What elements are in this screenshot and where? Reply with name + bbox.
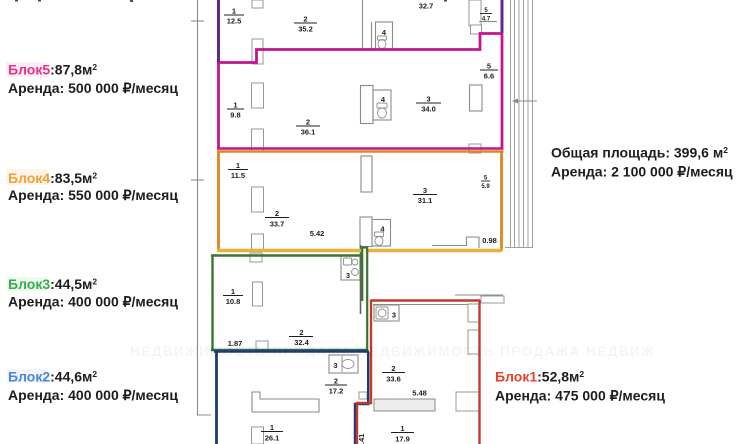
svg-text:36.1: 36.1 bbox=[301, 128, 316, 137]
svg-text:1: 1 bbox=[270, 423, 274, 432]
svg-text:34.0: 34.0 bbox=[421, 105, 436, 114]
svg-text:10.8: 10.8 bbox=[226, 297, 241, 306]
svg-text:1: 1 bbox=[400, 424, 404, 433]
svg-text:33.6: 33.6 bbox=[386, 375, 401, 384]
svg-text:5: 5 bbox=[487, 62, 491, 71]
svg-text:1: 1 bbox=[236, 161, 240, 170]
svg-text:Блок2:44,6м2: Блок2:44,6м2 bbox=[8, 369, 97, 385]
svg-text:2.41: 2.41 bbox=[357, 434, 366, 444]
svg-text:2: 2 bbox=[391, 364, 395, 373]
svg-text:3: 3 bbox=[426, 95, 430, 104]
svg-text:1: 1 bbox=[231, 287, 235, 296]
svg-text:2: 2 bbox=[334, 377, 338, 386]
svg-text:17.2: 17.2 bbox=[329, 387, 344, 396]
svg-text:Блок1:52,8м2: Блок1:52,8м2 bbox=[495, 369, 584, 385]
svg-text:6.6: 6.6 bbox=[484, 72, 494, 81]
svg-text:Аренда: 400 000 ₽/месяц: Аренда: 400 000 ₽/месяц bbox=[8, 294, 178, 310]
svg-text:11.5: 11.5 bbox=[231, 171, 245, 180]
svg-text:2: 2 bbox=[299, 328, 303, 337]
svg-text:Аренда: 550 000 ₽/месяц: Аренда: 550 000 ₽/месяц bbox=[8, 187, 178, 203]
svg-text:2: 2 bbox=[303, 15, 307, 24]
svg-text:33.7: 33.7 bbox=[270, 220, 285, 229]
svg-text:Аренда: 475 000 ₽/месяц: Аренда: 475 000 ₽/месяц bbox=[495, 388, 665, 404]
svg-text:3: 3 bbox=[423, 186, 427, 195]
svg-text:26.1: 26.1 bbox=[265, 434, 280, 443]
svg-text:0.98: 0.98 bbox=[482, 236, 497, 245]
svg-text:31.1: 31.1 bbox=[418, 196, 433, 205]
svg-text:НЕДВИЖИМОСТЬ ПРОДАЖА НЕДВИЖИМО: НЕДВИЖИМОСТЬ ПРОДАЖА НЕДВИЖИМОСТЬ ПРОДАЖ… bbox=[130, 344, 655, 359]
svg-text:Блок3:44,5м2: Блок3:44,5м2 bbox=[8, 276, 97, 292]
svg-text:3: 3 bbox=[392, 311, 396, 320]
svg-text:Аренда: 2 100 000 ₽/месяц: Аренда: 2 100 000 ₽/месяц bbox=[551, 164, 733, 180]
svg-text:Блок5:87,8м2: Блок5:87,8м2 bbox=[8, 62, 97, 78]
svg-text:17.9: 17.9 bbox=[395, 435, 410, 444]
svg-text:2: 2 bbox=[306, 118, 310, 127]
svg-text:5.48: 5.48 bbox=[412, 389, 427, 398]
svg-text:Аренда: 400 000 ₽/месяц: Аренда: 400 000 ₽/месяц bbox=[8, 387, 178, 403]
svg-text:35.2: 35.2 bbox=[298, 25, 313, 34]
svg-text:1: 1 bbox=[232, 7, 236, 16]
svg-text:12.5: 12.5 bbox=[227, 17, 242, 26]
svg-text:Общая площадь: 399,6 м2: Общая площадь: 399,6 м2 bbox=[551, 145, 728, 161]
svg-text:Аренда: 500 000 ₽/месяц: Аренда: 500 000 ₽/месяц bbox=[8, 80, 178, 96]
svg-text:5.42: 5.42 bbox=[310, 229, 325, 238]
svg-text:Блок4:83,5м2: Блок4:83,5м2 bbox=[8, 170, 97, 186]
svg-text:3: 3 bbox=[333, 361, 337, 370]
svg-text:9.8: 9.8 bbox=[230, 111, 240, 120]
svg-text:5.9: 5.9 bbox=[481, 184, 490, 190]
svg-text:32.7: 32.7 bbox=[419, 2, 434, 11]
svg-text:3: 3 bbox=[346, 271, 350, 280]
svg-text:1: 1 bbox=[233, 101, 237, 110]
svg-text:4.7: 4.7 bbox=[482, 17, 491, 23]
svg-text:2: 2 bbox=[275, 209, 279, 218]
